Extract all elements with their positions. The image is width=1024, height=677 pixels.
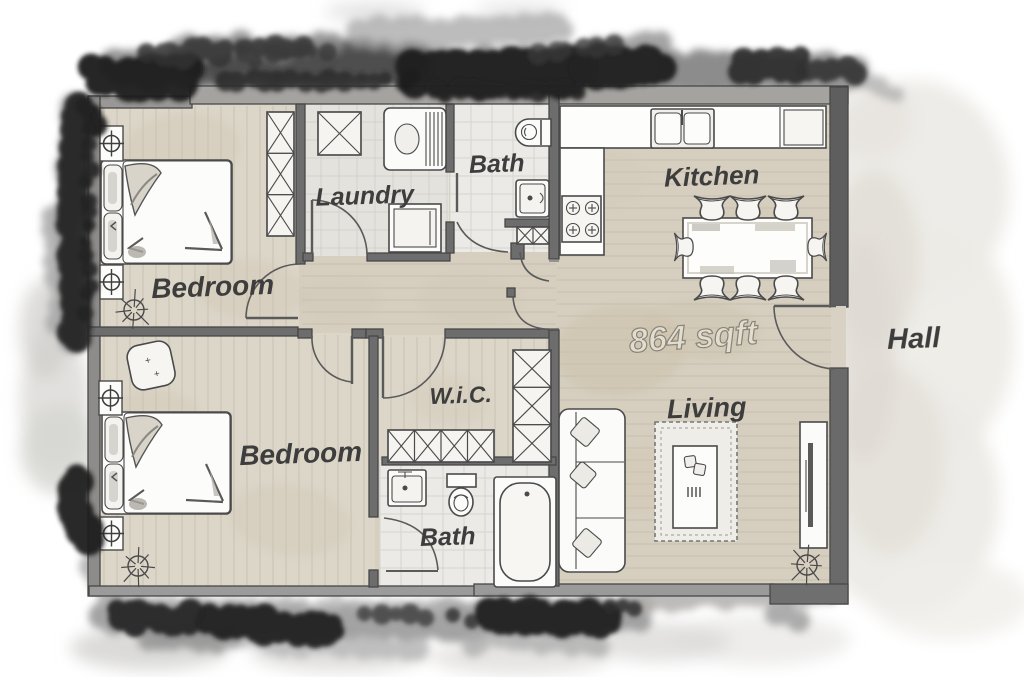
svg-text:Bath: Bath <box>419 522 476 552</box>
svg-text:W.i.C.: W.i.C. <box>429 381 492 409</box>
svg-text:Hall: Hall <box>887 322 942 356</box>
svg-text:Kitchen: Kitchen <box>664 159 760 192</box>
svg-text:Laundry: Laundry <box>315 180 416 211</box>
svg-text:Bedroom: Bedroom <box>151 269 275 304</box>
svg-text:Bath: Bath <box>468 149 525 179</box>
svg-text:Bedroom: Bedroom <box>239 436 363 471</box>
svg-text:Living: Living <box>666 392 747 425</box>
